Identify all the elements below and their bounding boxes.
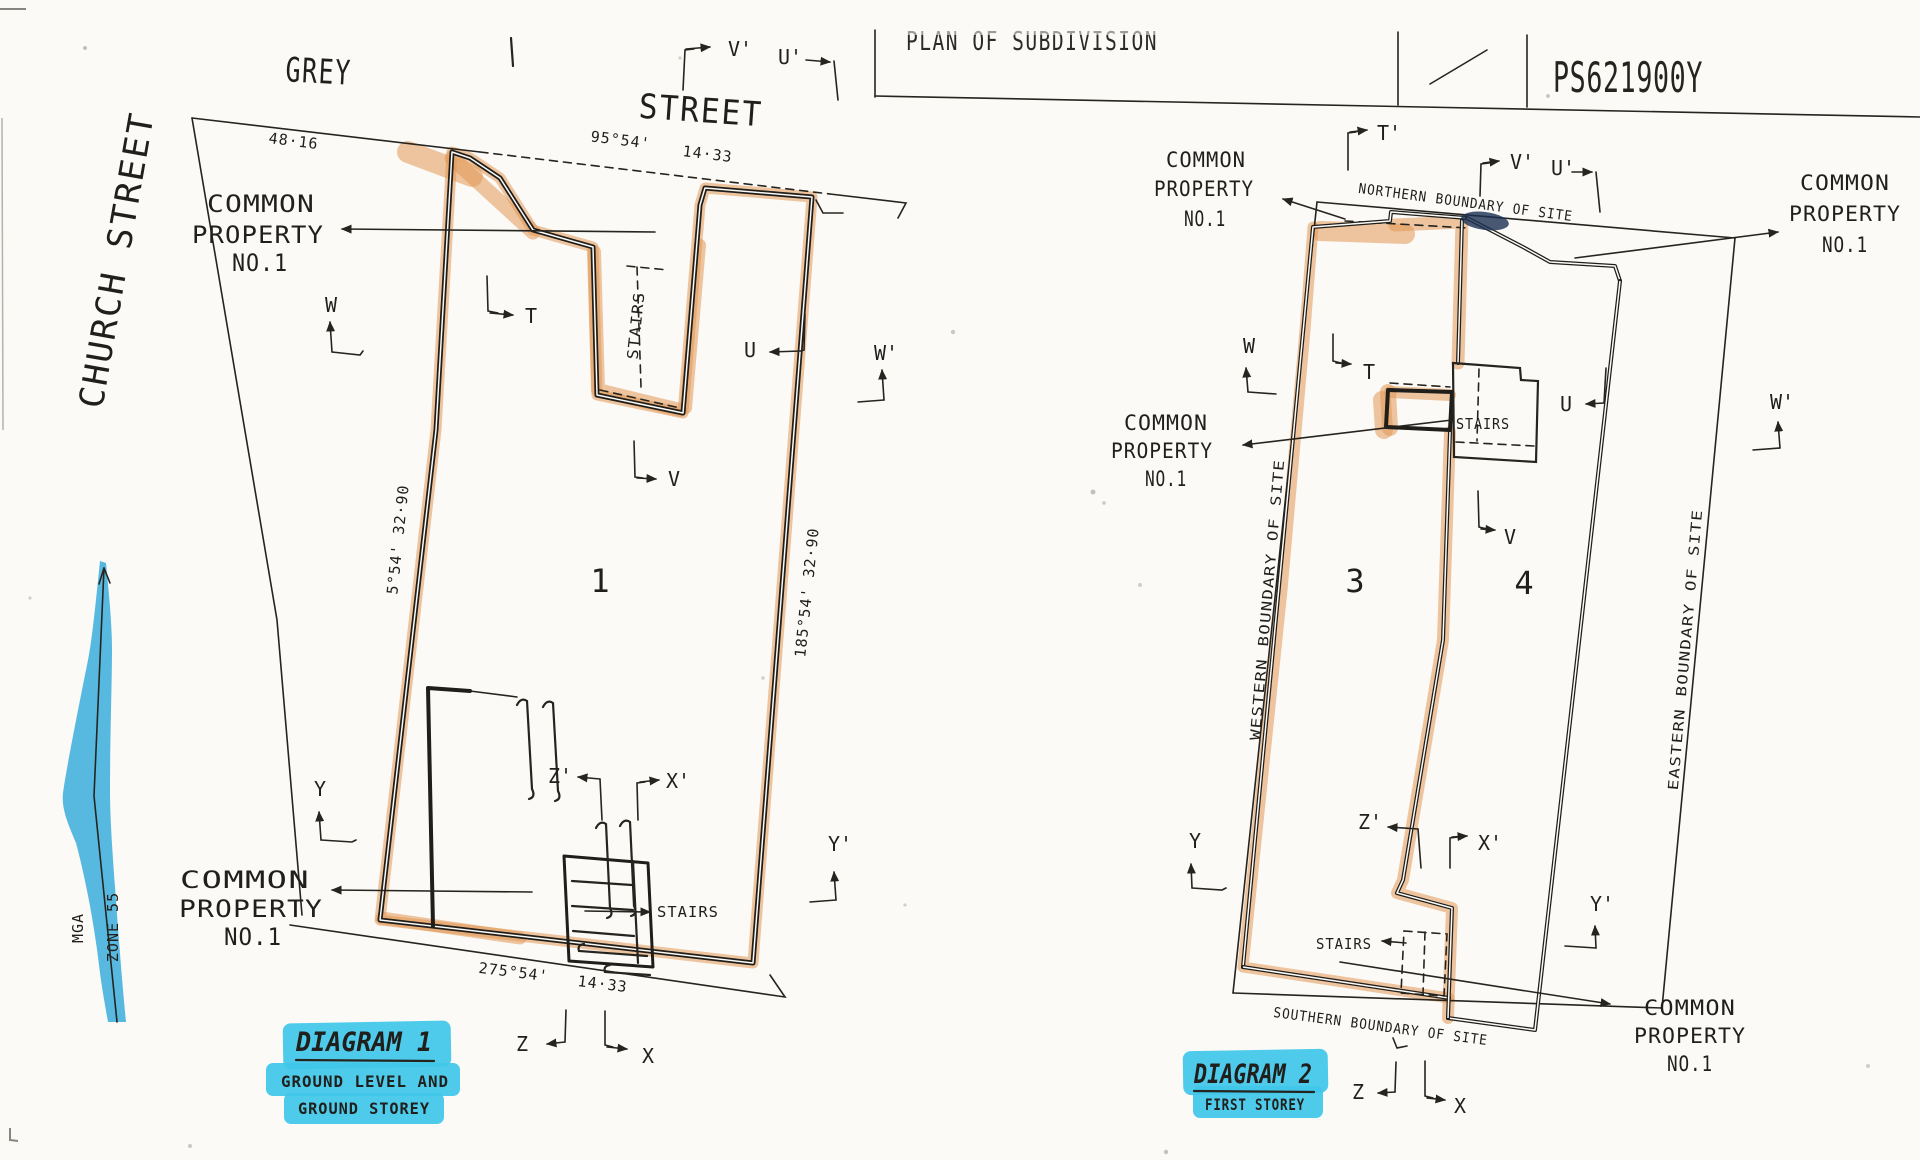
marker-wprime-d2: W': [1770, 390, 1794, 414]
marker-yprime-d1: Y': [828, 832, 852, 856]
north-arrow-zone-label: ZONE 55: [104, 892, 122, 962]
common-property-top-right-d2: COMMON PROPERTY NO.1: [1575, 171, 1901, 258]
caption1-line1: GROUND LEVEL AND: [281, 1072, 449, 1091]
plan-canvas: PLAN OF SUBDIVISION PS621900Y MGA ZONE 5…: [0, 0, 1920, 1160]
cp-tr-line3: NO.1: [1822, 233, 1868, 257]
marker-y-d1: Y: [314, 777, 326, 801]
diagram2-caption: DIAGRAM 2 FIRST STOREY: [1183, 1049, 1329, 1118]
stairs-bottom-leader: [585, 911, 650, 912]
common-property-top-d1: COMMON PROPERTY NO.1: [192, 190, 655, 277]
caption2-line1: FIRST STOREY: [1205, 1095, 1305, 1114]
scan-artifacts: [0, 9, 1870, 1154]
cp-tl-line1: COMMON: [1166, 148, 1246, 172]
cp-bottom-leader: [332, 890, 532, 892]
dim-west-d1: 5°54' 32·90: [383, 484, 412, 596]
stairwell-mid-d2: STAIRS: [1386, 363, 1538, 462]
diagram-2: STAIRS STAIRS NORTHERN BOUNDARY OF SITE …: [1111, 121, 1901, 1118]
dim-27554: 275°54': [478, 959, 550, 985]
dim-east-d1: 185°54' 32·90: [791, 527, 823, 659]
lot3-number: 3: [1345, 562, 1364, 600]
scanned-plan-page: PLAN OF SUBDIVISION PS621900Y MGA ZONE 5…: [0, 0, 1920, 1160]
street-name-church: CHURCH STREET: [71, 109, 162, 411]
stairs-bottom-label: STAIRS: [657, 903, 719, 921]
title-block-slash: [1430, 50, 1487, 84]
cp-ml-line1: COMMON: [1124, 411, 1208, 435]
cp-tr-line1: COMMON: [1800, 171, 1890, 195]
stairs-bottom-leader-d2: [1382, 941, 1406, 943]
marker-tprime-d2: T': [1377, 121, 1401, 145]
marker-y-d2: Y: [1189, 829, 1201, 853]
stairs-bottom-label-d2: STAIRS: [1316, 935, 1372, 953]
cp-ml-line3: NO.1: [1145, 467, 1187, 491]
dim-1433-bottom: 14·33: [577, 972, 629, 996]
marker-v-d1: V: [668, 467, 680, 491]
lot1-number: 1: [590, 562, 609, 600]
cp-br-line3: NO.1: [1667, 1052, 1713, 1076]
grey-street-alignment-east: [830, 194, 906, 218]
cp-top-line3: NO.1: [232, 249, 288, 277]
diagram1-caption: DIAGRAM 1 GROUND LEVEL AND GROUND STOREY: [266, 1021, 460, 1124]
caption1-line2: GROUND STOREY: [298, 1099, 430, 1118]
caption1-title: DIAGRAM 1: [295, 1027, 432, 1058]
cp-tr-leader: [1575, 232, 1778, 258]
marker-x-d2: X: [1454, 1094, 1466, 1118]
cp-ml-line2: PROPERTY: [1111, 439, 1213, 463]
north-arrow: MGA ZONE 55: [63, 561, 126, 1022]
cp-top-line2: PROPERTY: [192, 221, 324, 249]
marker-w-d1: W: [325, 293, 338, 317]
dim-9554: 95°54': [590, 127, 652, 152]
site-boundary-d1: [192, 38, 906, 997]
cp-ml-leader: [1243, 420, 1452, 445]
title-block: PLAN OF SUBDIVISION PS621900Y: [875, 10, 1920, 117]
marker-t-d2: T: [1363, 360, 1375, 384]
stairs-top-label: STAIRS: [624, 291, 649, 361]
cp-bottom-line2: PROPERTY: [179, 895, 323, 923]
marker-vprime-d1: V': [728, 37, 752, 61]
marker-uprime-d1: U': [778, 45, 802, 69]
common-property-top-left-d2: COMMON PROPERTY NO.1: [1154, 148, 1345, 231]
plan-number: PS621900Y: [1553, 53, 1703, 102]
cp-bottom-line1: COMMON: [180, 866, 310, 894]
marker-zprime-d1: Z': [548, 764, 572, 788]
cp-top-line1: COMMON: [207, 190, 315, 218]
marker-xprime-d2: X': [1478, 831, 1502, 855]
marker-uprime-d2: U': [1551, 156, 1575, 180]
grey-street-alignment-dashed: [480, 152, 830, 194]
marker-t-d1: T: [525, 304, 537, 328]
marker-zprime-d2: Z': [1358, 810, 1382, 834]
cp-top-leader: [342, 229, 655, 232]
corner-tick-ne: [816, 200, 843, 213]
marker-w-d2: W: [1243, 334, 1256, 358]
marker-z-d1: Z: [516, 1032, 528, 1056]
scan-cutoff-fade: [898, 10, 1173, 35]
stair-room-right: [1453, 363, 1538, 462]
marker-wprime-d1: W': [874, 341, 898, 365]
marker-x-d1: X: [642, 1044, 654, 1068]
cp-bottom-line3: NO.1: [224, 923, 282, 951]
marker-yprime-d2: Y': [1590, 892, 1614, 916]
cp-br-line2: PROPERTY: [1634, 1024, 1746, 1048]
marker-v-d2: V: [1504, 525, 1516, 549]
grey-street-alignment-west: [192, 118, 480, 152]
cp-tr-line2: PROPERTY: [1789, 202, 1901, 226]
eastern-boundary-line: [1662, 238, 1735, 1008]
cp-br-line1: COMMON: [1644, 996, 1736, 1020]
street-name-grey: GREY: [285, 50, 353, 93]
marker-u-d1: U: [744, 338, 756, 362]
marker-vprime-d2: V': [1510, 150, 1534, 174]
stairs-mid-label: STAIRS: [1456, 415, 1510, 433]
diagram-1: STAIRS STAIRS GREY STREET: [71, 37, 906, 1124]
marker-z-d2: Z: [1352, 1080, 1364, 1104]
lot4-number: 4: [1514, 564, 1533, 602]
cp-tl-line3: NO.1: [1184, 207, 1226, 231]
southern-boundary-label: SOUTHERN BOUNDARY OF SITE: [1272, 1005, 1488, 1049]
survey-tick: [511, 38, 513, 66]
cp-tl-leader: [1283, 199, 1345, 219]
north-arrow-mga-label: MGA: [69, 913, 87, 943]
dim-1433-top: 14·33: [682, 142, 734, 166]
cp-tl-line2: PROPERTY: [1154, 177, 1254, 201]
street-name-street: STREET: [638, 87, 764, 136]
marker-u-d2: U: [1560, 392, 1572, 416]
caption2-title: DIAGRAM 2: [1193, 1059, 1312, 1090]
marker-xprime-d1: X': [666, 769, 690, 793]
